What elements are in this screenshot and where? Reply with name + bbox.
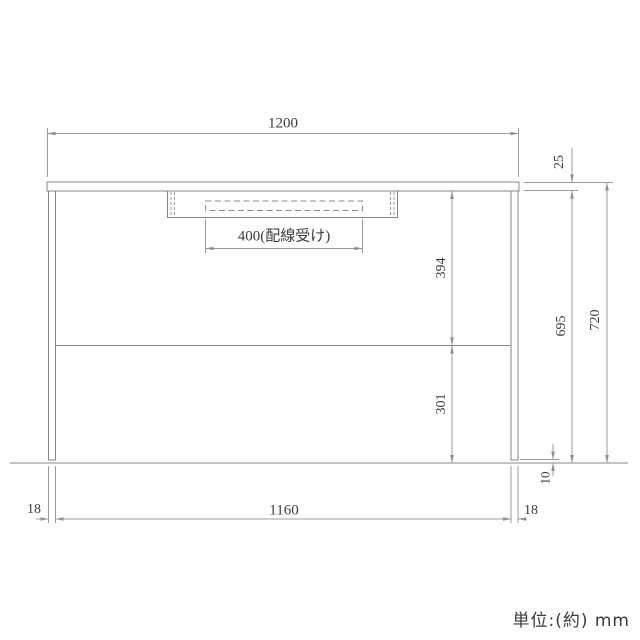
dim-label-adjuster-clearance: 10	[539, 472, 552, 485]
dim-label-total-height: 720	[589, 310, 603, 331]
dim-label-inner-width: 1160	[269, 504, 298, 519]
dim-394-graphics	[450, 191, 454, 346]
dim-25-graphics	[570, 148, 574, 183]
dim-label-right-leg-thickness: 18	[524, 504, 538, 518]
dim-label-under-top-to-crossbar: 394	[435, 258, 449, 279]
desk-front-elevation-drawing	[0, 0, 640, 640]
dim-label-under-top-to-floor: 695	[555, 316, 569, 337]
left-leg-panel	[49, 191, 56, 460]
right-extension-lines	[524, 183, 613, 191]
desk-top-panel	[47, 182, 519, 191]
dim-label-crossbar-to-floor: 301	[435, 394, 449, 415]
right-leg-panel	[511, 191, 518, 460]
dim-label-cable-tray: 400(配線受け)	[238, 230, 331, 245]
dim-301-graphics	[450, 346, 454, 464]
dim-1200-graphics	[48, 128, 519, 177]
technical-drawing-canvas: 1200 400(配線受け) 25 394 695 720 301 10 18 …	[0, 0, 640, 640]
cable-tray	[167, 191, 398, 218]
cable-slot-hidden-outline	[206, 201, 363, 211]
dim-label-top-thickness: 25	[553, 155, 567, 169]
dim-label-top-width: 1200	[268, 117, 298, 132]
dim-695-graphics	[570, 191, 574, 464]
dim-label-left-leg-thickness: 18	[27, 503, 41, 517]
unit-note: 単位:(約) mm	[512, 606, 630, 631]
dim-720-graphics	[605, 183, 609, 464]
